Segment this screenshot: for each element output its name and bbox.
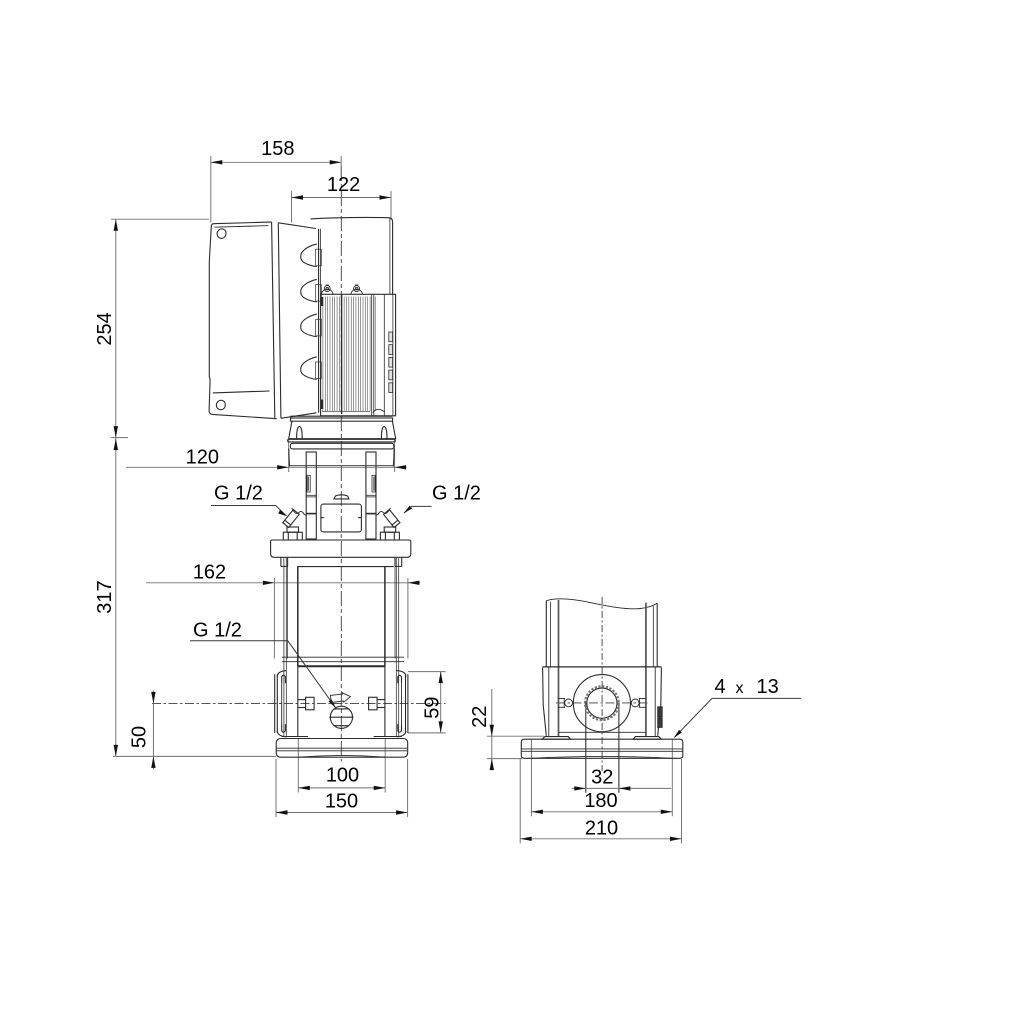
svg-text:50: 50 xyxy=(128,726,150,748)
svg-text:4: 4 xyxy=(715,676,726,698)
svg-text:13: 13 xyxy=(757,676,779,698)
svg-text:G 1/2: G 1/2 xyxy=(432,483,481,505)
svg-text:G 1/2: G 1/2 xyxy=(214,483,263,505)
svg-text:162: 162 xyxy=(193,562,226,584)
svg-text:G 1/2: G 1/2 xyxy=(193,620,242,642)
svg-text:59: 59 xyxy=(422,696,444,718)
svg-text:210: 210 xyxy=(585,817,618,839)
svg-text:317: 317 xyxy=(94,580,116,613)
svg-text:122: 122 xyxy=(327,174,360,196)
svg-text:120: 120 xyxy=(186,447,219,469)
svg-text:100: 100 xyxy=(326,765,359,787)
svg-text:150: 150 xyxy=(325,791,358,813)
svg-text:180: 180 xyxy=(584,790,617,812)
svg-text:22: 22 xyxy=(469,706,491,728)
svg-text:158: 158 xyxy=(261,138,294,160)
svg-text:32: 32 xyxy=(591,767,613,789)
svg-text:254: 254 xyxy=(94,312,116,345)
svg-text:x: x xyxy=(736,680,744,697)
